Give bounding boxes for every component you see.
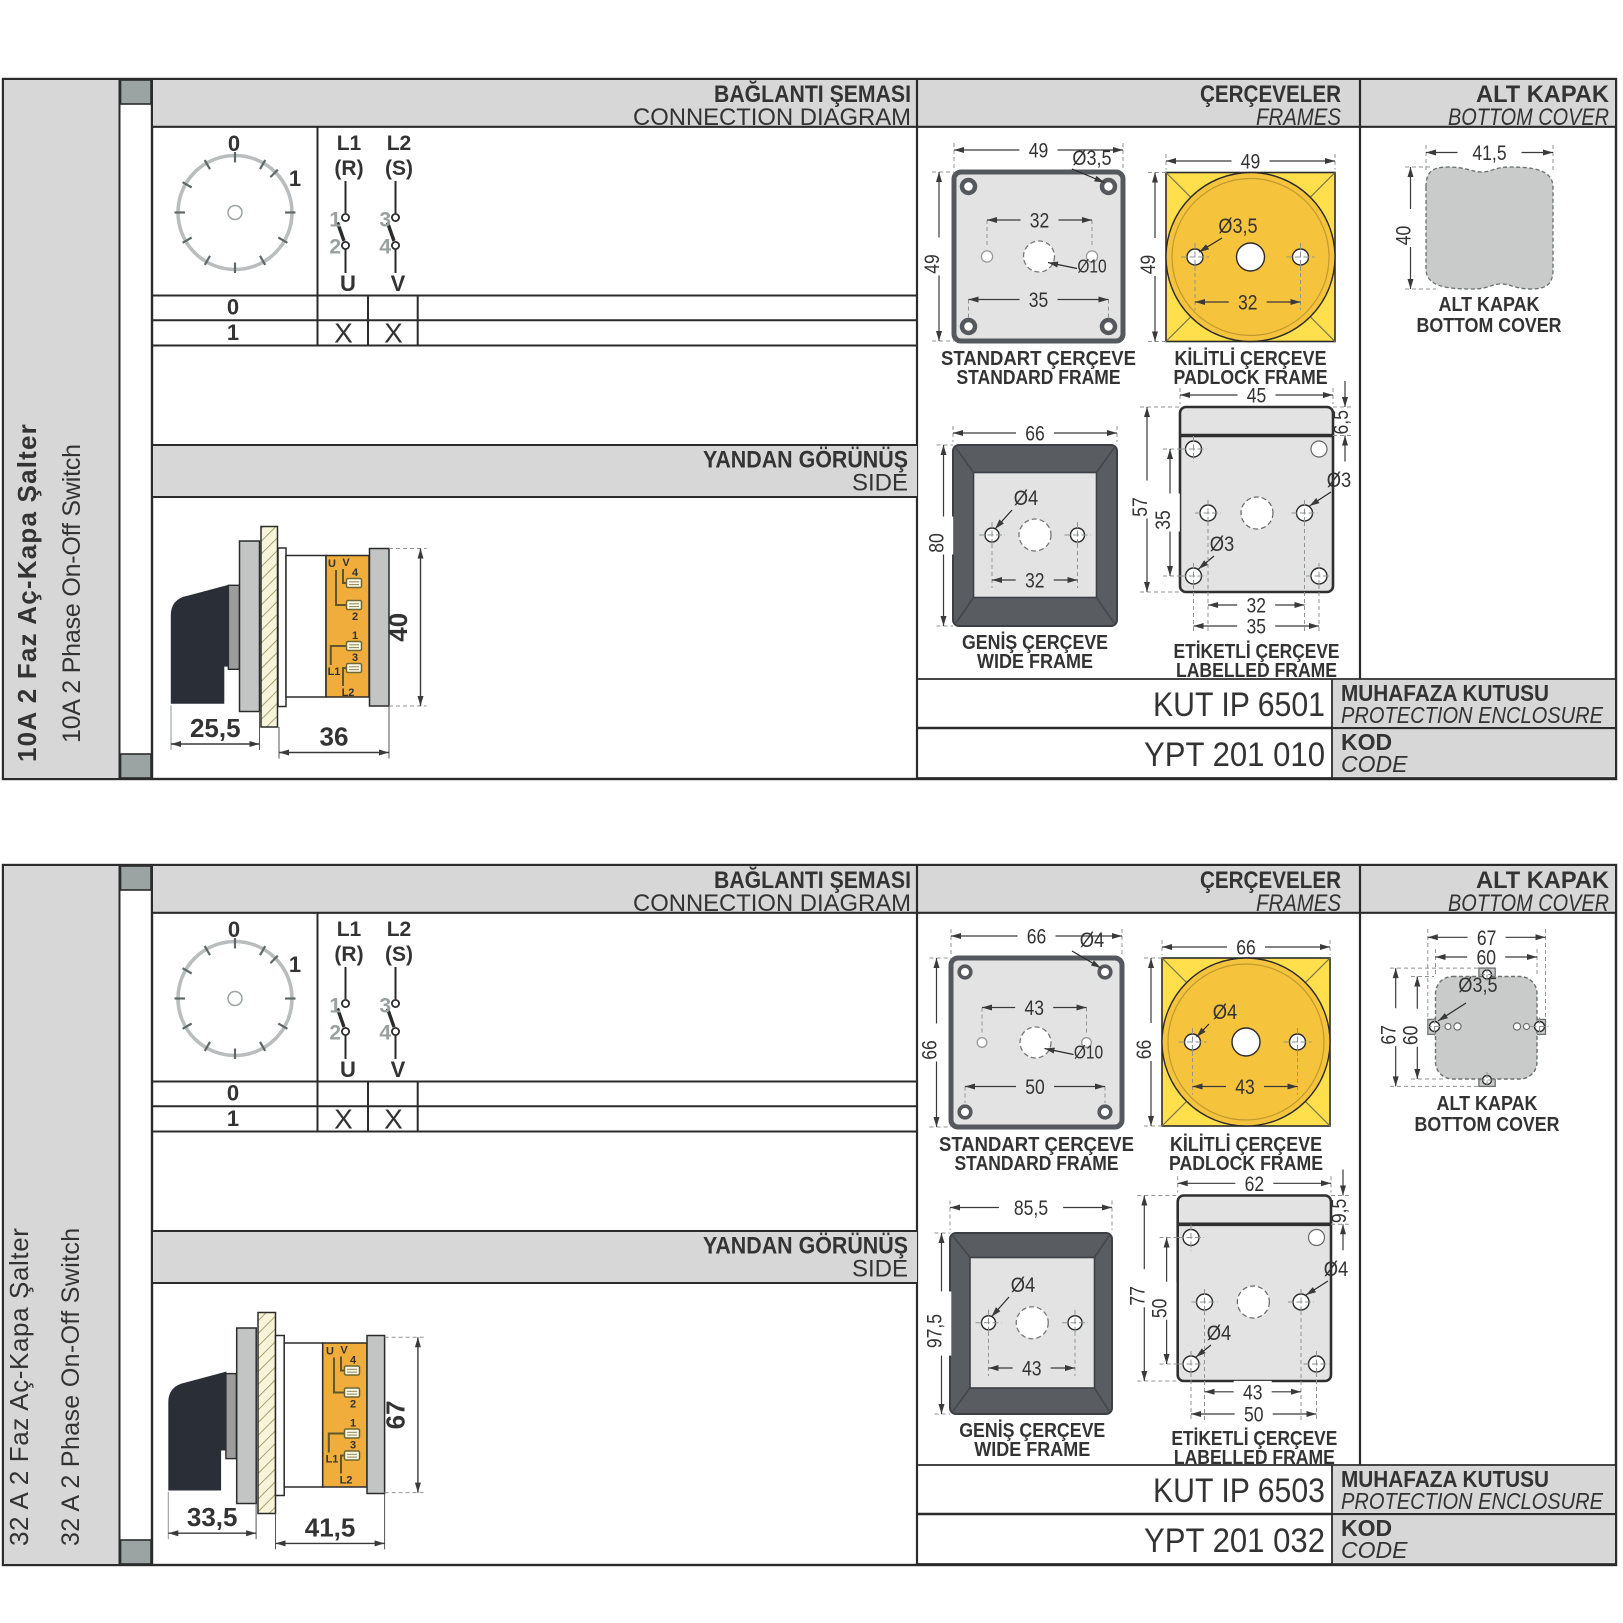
svg-text:L2: L2 <box>387 918 412 941</box>
svg-text:WIDE FRAME: WIDE FRAME <box>977 651 1093 673</box>
svg-text:66: 66 <box>1133 1040 1156 1060</box>
svg-text:X: X <box>334 1104 353 1135</box>
svg-text:43: 43 <box>1025 997 1045 1020</box>
svg-text:(R): (R) <box>334 943 363 966</box>
svg-text:X: X <box>384 1104 403 1135</box>
svg-text:32 A 2 Faz Aç-Kapa Şalter: 32 A 2 Faz Aç-Kapa Şalter <box>4 1227 34 1546</box>
svg-text:U: U <box>328 558 336 570</box>
svg-text:33,5: 33,5 <box>187 1502 238 1532</box>
svg-text:57: 57 <box>1129 497 1152 517</box>
svg-text:49: 49 <box>1137 255 1160 275</box>
svg-text:49: 49 <box>1029 140 1049 163</box>
svg-text:35: 35 <box>1247 616 1267 639</box>
svg-text:66: 66 <box>1027 926 1047 949</box>
svg-text:32: 32 <box>1030 210 1050 233</box>
svg-text:STANDARD FRAME: STANDARD FRAME <box>957 367 1121 389</box>
svg-text:YPT 201 032: YPT 201 032 <box>1144 1522 1325 1560</box>
svg-text:CODE: CODE <box>1341 1537 1408 1563</box>
svg-text:CONNECTION DIAGRAM: CONNECTION DIAGRAM <box>633 104 911 131</box>
svg-text:U: U <box>340 271 356 296</box>
svg-text:0: 0 <box>227 295 239 320</box>
svg-text:X: X <box>384 318 403 349</box>
svg-text:85,5: 85,5 <box>1014 1197 1048 1220</box>
svg-text:YPT 201 010: YPT 201 010 <box>1144 736 1325 774</box>
svg-text:66: 66 <box>1236 937 1256 960</box>
svg-text:77: 77 <box>1126 1286 1149 1306</box>
svg-text:3: 3 <box>379 209 391 232</box>
svg-text:KUT IP 6503: KUT IP 6503 <box>1153 1472 1325 1510</box>
svg-text:1: 1 <box>227 1106 239 1131</box>
svg-text:Ø3,5: Ø3,5 <box>1458 974 1497 997</box>
svg-text:43: 43 <box>1243 1381 1263 1404</box>
svg-text:3: 3 <box>379 995 391 1018</box>
svg-text:V: V <box>342 557 350 569</box>
svg-text:ALT KAPAK: ALT KAPAK <box>1439 294 1540 316</box>
svg-text:3: 3 <box>352 652 358 664</box>
svg-text:40: 40 <box>1393 226 1416 246</box>
svg-text:10A 2 Faz Aç-Kapa Şalter: 10A 2 Faz Aç-Kapa Şalter <box>12 423 42 762</box>
svg-text:Ø4: Ø4 <box>1080 929 1105 952</box>
svg-text:U: U <box>340 1057 356 1082</box>
svg-text:CONNECTION DIAGRAM: CONNECTION DIAGRAM <box>633 890 911 917</box>
svg-text:Ø4: Ø4 <box>1324 1258 1349 1281</box>
svg-text:L1: L1 <box>328 666 341 678</box>
svg-text:1: 1 <box>329 209 341 232</box>
svg-text:3: 3 <box>350 1440 356 1452</box>
svg-text:L1: L1 <box>337 918 362 941</box>
svg-text:50: 50 <box>1025 1076 1045 1099</box>
svg-text:50: 50 <box>1149 1299 1172 1319</box>
svg-text:(R): (R) <box>334 157 363 180</box>
svg-text:SIDE: SIDE <box>852 1256 908 1283</box>
svg-text:80: 80 <box>926 533 949 553</box>
svg-text:PROTECTION ENCLOSURE: PROTECTION ENCLOSURE <box>1341 702 1604 728</box>
svg-text:32: 32 <box>1025 570 1045 593</box>
svg-text:1: 1 <box>289 952 301 977</box>
svg-text:40: 40 <box>383 613 413 642</box>
svg-text:0: 0 <box>227 1081 239 1106</box>
svg-text:2: 2 <box>329 236 341 259</box>
svg-text:0: 0 <box>228 917 240 942</box>
svg-text:PADLOCK FRAME: PADLOCK FRAME <box>1169 1153 1323 1175</box>
svg-text:35: 35 <box>1029 289 1049 312</box>
svg-text:CODE: CODE <box>1341 751 1408 777</box>
svg-text:Ø4: Ø4 <box>1011 1274 1036 1297</box>
svg-text:SIDE: SIDE <box>852 470 908 497</box>
svg-text:67: 67 <box>1378 1025 1401 1045</box>
svg-text:1: 1 <box>227 320 239 345</box>
svg-text:60: 60 <box>1477 947 1497 970</box>
svg-text:2: 2 <box>352 611 358 623</box>
svg-text:50: 50 <box>1244 1404 1264 1427</box>
svg-text:BOTTOM COVER: BOTTOM COVER <box>1448 890 1609 917</box>
svg-text:X: X <box>334 318 353 349</box>
svg-text:1: 1 <box>289 166 301 191</box>
svg-text:6,5: 6,5 <box>1330 410 1353 435</box>
svg-text:Ø3: Ø3 <box>1327 469 1352 492</box>
svg-text:1: 1 <box>350 1418 356 1430</box>
svg-text:35: 35 <box>1152 510 1175 530</box>
svg-text:43: 43 <box>1235 1076 1255 1099</box>
svg-text:V: V <box>340 1345 348 1357</box>
svg-text:9,5: 9,5 <box>1328 1199 1351 1224</box>
svg-text:L1: L1 <box>326 1454 339 1466</box>
svg-text:Ø10: Ø10 <box>1077 257 1106 277</box>
svg-text:V: V <box>391 1057 406 1082</box>
svg-text:2: 2 <box>329 1022 341 1045</box>
svg-text:Ø3: Ø3 <box>1210 533 1235 556</box>
svg-text:4: 4 <box>379 236 391 259</box>
svg-text:V: V <box>391 271 406 296</box>
svg-text:49: 49 <box>1241 151 1261 174</box>
svg-text:4: 4 <box>352 567 359 579</box>
svg-text:L2: L2 <box>342 687 355 699</box>
svg-text:32 A 2 Phase On-Off Switch: 32 A 2 Phase On-Off Switch <box>57 1227 85 1546</box>
svg-text:(S): (S) <box>385 943 413 966</box>
svg-text:BOTTOM COVER: BOTTOM COVER <box>1415 1114 1560 1136</box>
svg-text:41,5: 41,5 <box>1472 142 1506 165</box>
svg-text:4: 4 <box>379 1022 391 1045</box>
svg-text:41,5: 41,5 <box>305 1512 356 1542</box>
svg-text:97,5: 97,5 <box>924 1314 947 1348</box>
svg-text:32: 32 <box>1247 595 1267 618</box>
svg-text:ALT KAPAK: ALT KAPAK <box>1437 1093 1538 1115</box>
svg-text:1: 1 <box>352 630 358 642</box>
svg-text:66: 66 <box>1025 423 1045 446</box>
svg-text:L2: L2 <box>387 132 412 155</box>
svg-text:Ø10: Ø10 <box>1074 1043 1103 1063</box>
svg-text:0: 0 <box>228 131 240 156</box>
svg-text:L2: L2 <box>340 1475 353 1487</box>
svg-text:L1: L1 <box>337 132 362 155</box>
svg-text:PROTECTION ENCLOSURE: PROTECTION ENCLOSURE <box>1341 1488 1604 1514</box>
svg-text:25,5: 25,5 <box>190 713 241 743</box>
svg-text:Ø4: Ø4 <box>1014 487 1039 510</box>
svg-text:1: 1 <box>329 995 341 1018</box>
svg-text:66: 66 <box>919 1040 942 1060</box>
svg-text:62: 62 <box>1245 1173 1265 1196</box>
svg-text:Ø3,5: Ø3,5 <box>1218 215 1257 238</box>
svg-text:Ø4: Ø4 <box>1213 1001 1238 1024</box>
svg-text:Ø3,5: Ø3,5 <box>1072 147 1111 170</box>
svg-text:FRAMES: FRAMES <box>1256 890 1341 917</box>
svg-text:49: 49 <box>921 254 944 274</box>
svg-text:BOTTOM COVER: BOTTOM COVER <box>1417 315 1562 337</box>
svg-text:32: 32 <box>1238 292 1258 315</box>
svg-text:Ø4: Ø4 <box>1207 1322 1232 1345</box>
svg-text:4: 4 <box>350 1355 357 1367</box>
svg-text:(S): (S) <box>385 157 413 180</box>
svg-text:60: 60 <box>1399 1026 1422 1046</box>
svg-text:36: 36 <box>320 722 349 752</box>
svg-text:BOTTOM COVER: BOTTOM COVER <box>1448 104 1609 131</box>
svg-text:67: 67 <box>380 1400 410 1429</box>
svg-text:43: 43 <box>1022 1358 1042 1381</box>
svg-text:2: 2 <box>350 1399 356 1411</box>
svg-text:KUT IP 6501: KUT IP 6501 <box>1153 686 1325 724</box>
svg-text:45: 45 <box>1247 385 1267 408</box>
svg-text:STANDARD FRAME: STANDARD FRAME <box>955 1153 1119 1175</box>
svg-text:10A 2 Phase On-Off Switch: 10A 2 Phase On-Off Switch <box>58 444 86 743</box>
svg-text:FRAMES: FRAMES <box>1256 104 1341 131</box>
svg-text:U: U <box>326 1346 334 1358</box>
svg-text:WIDE FRAME: WIDE FRAME <box>974 1439 1090 1461</box>
